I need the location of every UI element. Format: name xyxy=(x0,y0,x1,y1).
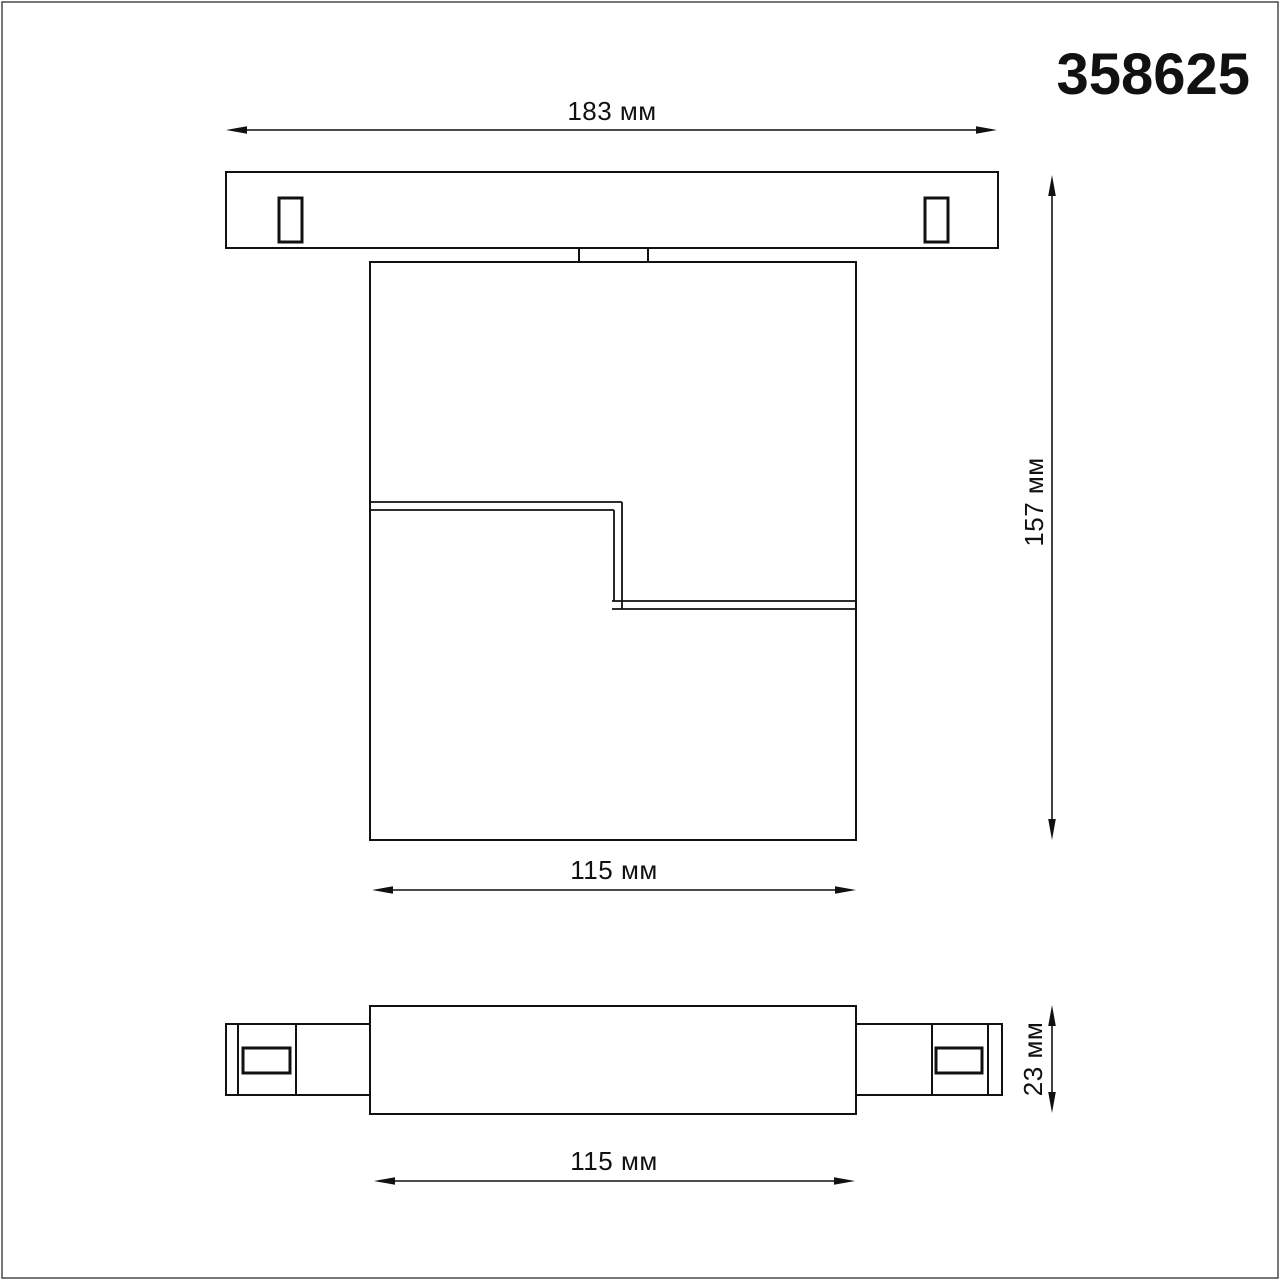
arrowhead-right-icon xyxy=(834,1177,855,1185)
arrowhead-top-icon xyxy=(1048,1005,1056,1026)
dimension-body-thickness: 23 мм xyxy=(1018,1005,1056,1113)
dimension-body-width: 115 мм xyxy=(372,855,856,894)
dimension-label-body-thickness: 23 мм xyxy=(1018,1022,1048,1096)
part-number: 358625 xyxy=(1056,42,1250,107)
fixture-body xyxy=(370,262,856,840)
arrowhead-right-icon xyxy=(976,126,997,134)
drawing-sheet: 358625 xyxy=(0,0,1280,1280)
fold-step-lines xyxy=(370,502,856,609)
track-mount-slot-right xyxy=(925,198,948,242)
fixture-side-view xyxy=(226,1006,1002,1114)
arrowhead-top-icon xyxy=(1048,175,1056,196)
arrowhead-bottom-icon xyxy=(1048,819,1056,840)
track-top-view xyxy=(226,172,998,262)
dimension-label-overall-height: 157 мм xyxy=(1019,457,1049,546)
side-connector-left-window xyxy=(243,1048,290,1073)
arrowhead-left-icon xyxy=(226,126,247,134)
dimension-label-track-width: 183 мм xyxy=(567,96,656,126)
dimension-label-body-width-bottom: 115 мм xyxy=(570,1146,657,1176)
adapter-tab xyxy=(579,248,648,262)
track-bar xyxy=(226,172,998,248)
dimension-track-width: 183 мм xyxy=(226,96,997,134)
dimension-overall-height: 157 мм xyxy=(1019,175,1056,840)
page-border xyxy=(2,2,1278,1278)
arrowhead-right-icon xyxy=(835,886,856,894)
arrowhead-left-icon xyxy=(372,886,393,894)
fixture-front-view xyxy=(370,262,856,840)
dimension-drawing: 358625 xyxy=(0,0,1280,1280)
side-connector-left xyxy=(226,1024,370,1095)
track-mount-slot-left xyxy=(279,198,302,242)
side-body xyxy=(370,1006,856,1114)
dimension-label-body-width: 115 мм xyxy=(570,855,657,885)
arrowhead-left-icon xyxy=(374,1177,395,1185)
side-connector-right-window xyxy=(936,1048,982,1073)
arrowhead-bottom-icon xyxy=(1048,1092,1056,1113)
dimension-body-width-bottom: 115 мм xyxy=(374,1146,855,1185)
side-connector-right xyxy=(856,1024,1002,1095)
